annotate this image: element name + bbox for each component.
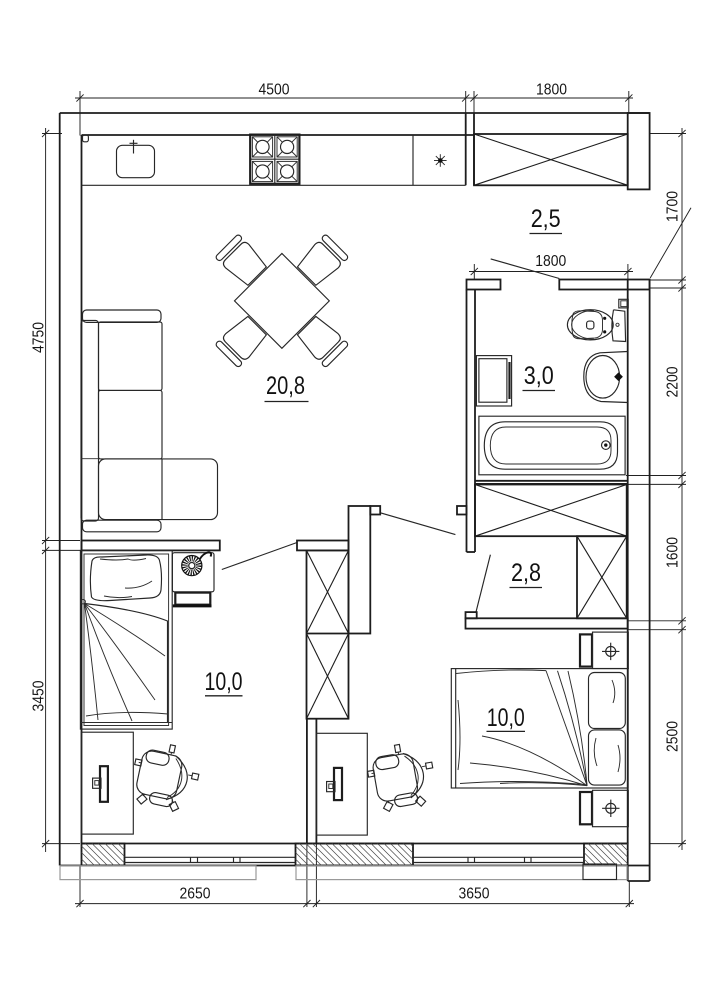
- svg-text:2200: 2200: [664, 366, 681, 397]
- svg-text:3,0: 3,0: [524, 362, 554, 390]
- svg-text:2650: 2650: [180, 886, 211, 903]
- svg-text:4500: 4500: [259, 82, 290, 99]
- svg-text:3450: 3450: [31, 680, 48, 711]
- svg-text:1800: 1800: [536, 82, 567, 99]
- svg-text:2,8: 2,8: [511, 559, 541, 587]
- svg-text:20,8: 20,8: [266, 372, 305, 400]
- svg-text:2,5: 2,5: [531, 205, 561, 233]
- svg-text:10,0: 10,0: [487, 704, 525, 732]
- svg-text:3650: 3650: [459, 886, 490, 903]
- svg-text:2500: 2500: [664, 721, 681, 752]
- svg-text:1700: 1700: [664, 191, 681, 222]
- svg-text:1600: 1600: [664, 537, 681, 568]
- svg-text:4750: 4750: [31, 322, 48, 353]
- svg-text:1800: 1800: [535, 253, 566, 270]
- svg-text:10,0: 10,0: [205, 668, 243, 696]
